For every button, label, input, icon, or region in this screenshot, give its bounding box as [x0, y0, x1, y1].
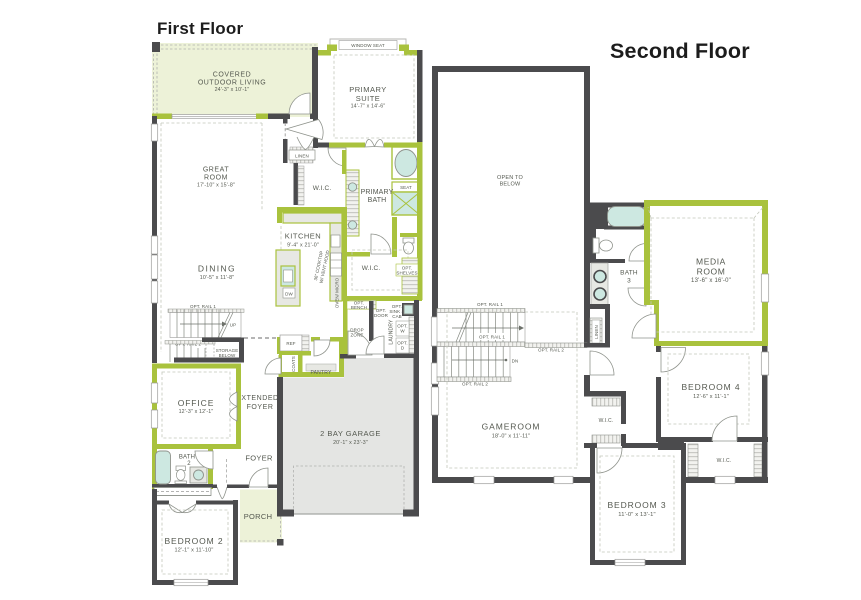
svg-text:SUITE: SUITE	[356, 94, 381, 103]
svg-text:BEDROOM 2: BEDROOM 2	[164, 536, 223, 546]
svg-text:CAB: CAB	[392, 314, 402, 319]
svg-text:13'-6" x 16'-0": 13'-6" x 16'-0"	[691, 278, 731, 284]
svg-text:OUTDOOR LIVING: OUTDOOR LIVING	[198, 80, 266, 87]
svg-text:OPT. RAIL 2: OPT. RAIL 2	[538, 348, 564, 353]
svg-text:BENCH: BENCH	[351, 305, 367, 310]
svg-text:12'-6" x 11'-1": 12'-6" x 11'-1"	[693, 394, 729, 400]
svg-text:OFFICE: OFFICE	[178, 398, 215, 408]
svg-text:First Floor: First Floor	[157, 19, 243, 38]
svg-text:BELOW: BELOW	[219, 353, 236, 358]
svg-text:2 BAY GARAGE: 2 BAY GARAGE	[320, 429, 381, 438]
svg-text:LINEN: LINEN	[594, 325, 599, 339]
svg-text:SHELVES: SHELVES	[396, 271, 417, 276]
svg-text:PORCH: PORCH	[244, 512, 273, 521]
svg-text:2: 2	[187, 461, 191, 467]
svg-text:W: W	[400, 329, 405, 334]
svg-text:LAUNDRY: LAUNDRY	[389, 319, 395, 345]
svg-text:20'-1" x 23'-3": 20'-1" x 23'-3"	[333, 440, 368, 446]
svg-text:14'-7" x 14'-6": 14'-7" x 14'-6"	[351, 104, 386, 110]
svg-text:OPT. RAIL 1: OPT. RAIL 1	[479, 335, 505, 340]
svg-text:W.I.C.: W.I.C.	[362, 265, 381, 272]
svg-text:PANTRY: PANTRY	[310, 370, 331, 376]
svg-text:UP: UP	[230, 323, 236, 328]
svg-text:W.I.C.: W.I.C.	[599, 418, 614, 424]
svg-text:Second Floor: Second Floor	[610, 39, 750, 63]
svg-text:OVEN/ MICRO: OVEN/ MICRO	[335, 277, 340, 308]
svg-text:KITCHEN: KITCHEN	[285, 232, 321, 241]
svg-text:FOYER: FOYER	[245, 454, 273, 463]
svg-text:3: 3	[627, 278, 631, 285]
svg-text:OPEN TO: OPEN TO	[497, 175, 523, 181]
svg-text:PRIMARY: PRIMARY	[349, 85, 387, 94]
svg-text:10'-5" x 11'-8": 10'-5" x 11'-8"	[200, 275, 234, 281]
svg-text:18'-0" x 11'-11": 18'-0" x 11'-11"	[492, 434, 530, 440]
svg-text:COVERED: COVERED	[213, 72, 251, 79]
svg-text:LINEN: LINEN	[295, 154, 309, 159]
svg-text:12'-3" x 12'-1": 12'-3" x 12'-1"	[179, 409, 214, 415]
svg-text:DW: DW	[285, 292, 293, 297]
svg-text:WINDOW SEAT: WINDOW SEAT	[351, 43, 385, 48]
svg-text:11'-0" x 13'-1": 11'-0" x 13'-1"	[618, 512, 655, 518]
svg-text:OPT. RAIL 1: OPT. RAIL 1	[477, 302, 503, 307]
svg-text:OPT. RAIL 1: OPT. RAIL 1	[190, 304, 216, 309]
svg-text:W.I.C.: W.I.C.	[313, 185, 332, 192]
svg-text:W.I.C.: W.I.C.	[717, 458, 732, 464]
svg-text:ROOM: ROOM	[204, 175, 228, 182]
svg-text:OPT. RAIL 2: OPT. RAIL 2	[462, 382, 488, 387]
svg-text:9'-4" x 21'-0": 9'-4" x 21'-0"	[287, 243, 319, 249]
svg-text:BEDROOM 3: BEDROOM 3	[607, 500, 666, 510]
svg-text:GREAT: GREAT	[203, 167, 230, 174]
svg-text:DN: DN	[512, 359, 519, 364]
svg-text:REF: REF	[286, 341, 295, 346]
svg-text:BEDROOM 4: BEDROOM 4	[681, 382, 740, 392]
svg-text:BELOW: BELOW	[500, 182, 521, 188]
svg-text:BATH: BATH	[620, 270, 638, 277]
svg-text:PRIMARY: PRIMARY	[361, 189, 394, 196]
svg-text:ZONE: ZONE	[351, 333, 364, 338]
svg-text:ROOM: ROOM	[697, 267, 726, 277]
svg-text:DOOR: DOOR	[374, 313, 389, 318]
svg-text:FOYER: FOYER	[247, 404, 274, 411]
svg-text:24'-3" x 10'-1": 24'-3" x 10'-1"	[215, 87, 250, 93]
svg-text:COATS: COATS	[291, 356, 296, 372]
svg-text:XTENDED: XTENDED	[241, 395, 278, 402]
svg-text:GAMEROOM: GAMEROOM	[482, 422, 541, 432]
svg-text:17'-10" x 15'-8": 17'-10" x 15'-8"	[197, 183, 235, 189]
svg-text:BATH: BATH	[179, 455, 195, 461]
svg-text:BATH: BATH	[368, 197, 387, 204]
svg-text:DINING: DINING	[198, 264, 236, 274]
svg-text:MEDIA: MEDIA	[696, 257, 726, 267]
svg-text:12'-1" x 11'-10": 12'-1" x 11'-10"	[175, 548, 214, 554]
svg-text:SEAT: SEAT	[400, 185, 412, 190]
